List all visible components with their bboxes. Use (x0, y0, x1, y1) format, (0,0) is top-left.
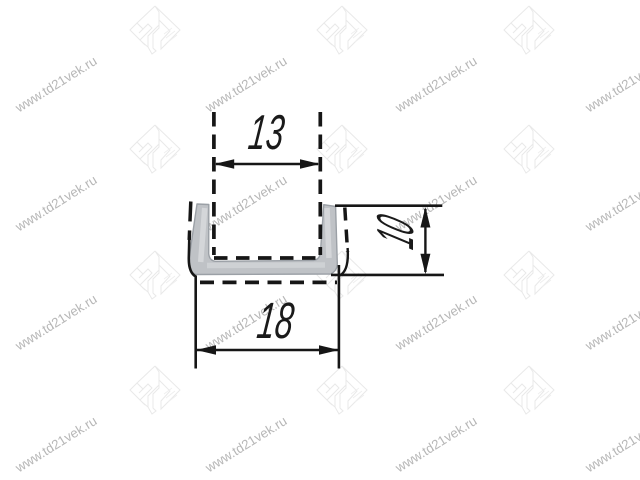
svg-text:18: 18 (254, 293, 297, 350)
svg-text:13: 13 (246, 105, 288, 160)
